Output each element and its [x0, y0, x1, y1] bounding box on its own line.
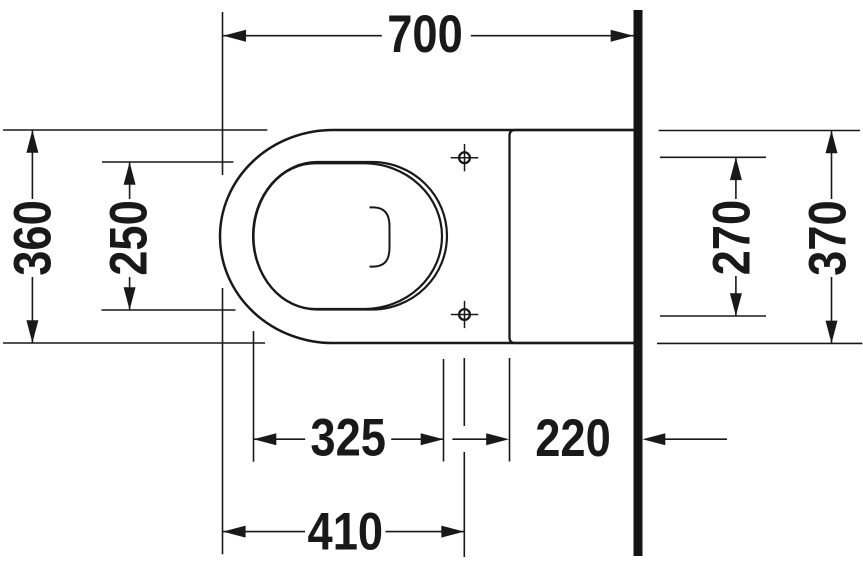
svg-text:700: 700: [387, 5, 463, 64]
svg-text:370: 370: [798, 200, 857, 276]
svg-text:325: 325: [310, 408, 386, 467]
svg-text:250: 250: [99, 200, 158, 276]
svg-text:270: 270: [702, 200, 761, 276]
svg-text:220: 220: [535, 409, 611, 468]
svg-text:410: 410: [308, 502, 384, 561]
svg-text:360: 360: [3, 200, 62, 276]
